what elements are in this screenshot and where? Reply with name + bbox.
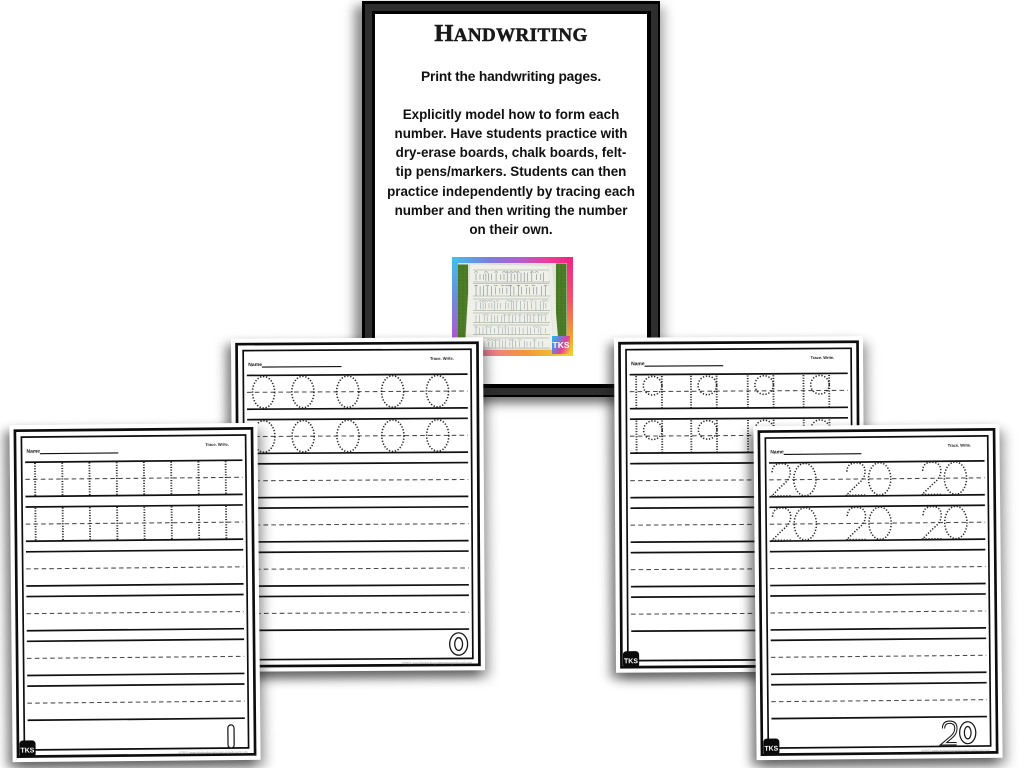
svg-text:©2021 www.thekindergartensmorg: ©2021 www.thekindergartensmorgasboard.co… [921,748,990,753]
svg-text:Trace. Write.: Trace. Write. [430,355,454,360]
svg-text:Name: Name [631,361,645,367]
svg-text:TKS: TKS [624,658,638,665]
svg-text:TKS: TKS [764,745,778,752]
svg-text:TKS: TKS [21,747,35,754]
svg-text:Trace. Write.: Trace. Write. [948,442,971,447]
svg-text:Name: Name [248,362,262,368]
svg-text:Name: Name [770,449,784,455]
svg-text:©2021 www.thekindergartensmorg: ©2021 www.thekindergartensmorgasboard.co… [179,750,248,755]
svg-text:Trace. Write.: Trace. Write. [205,442,229,447]
svg-text:Name: Name [26,449,40,455]
svg-text:©2021 www.thekindergartensmorg: ©2021 www.thekindergartensmorgasboard.co… [402,660,472,664]
svg-text:Trace. Write.: Trace. Write. [811,355,835,360]
